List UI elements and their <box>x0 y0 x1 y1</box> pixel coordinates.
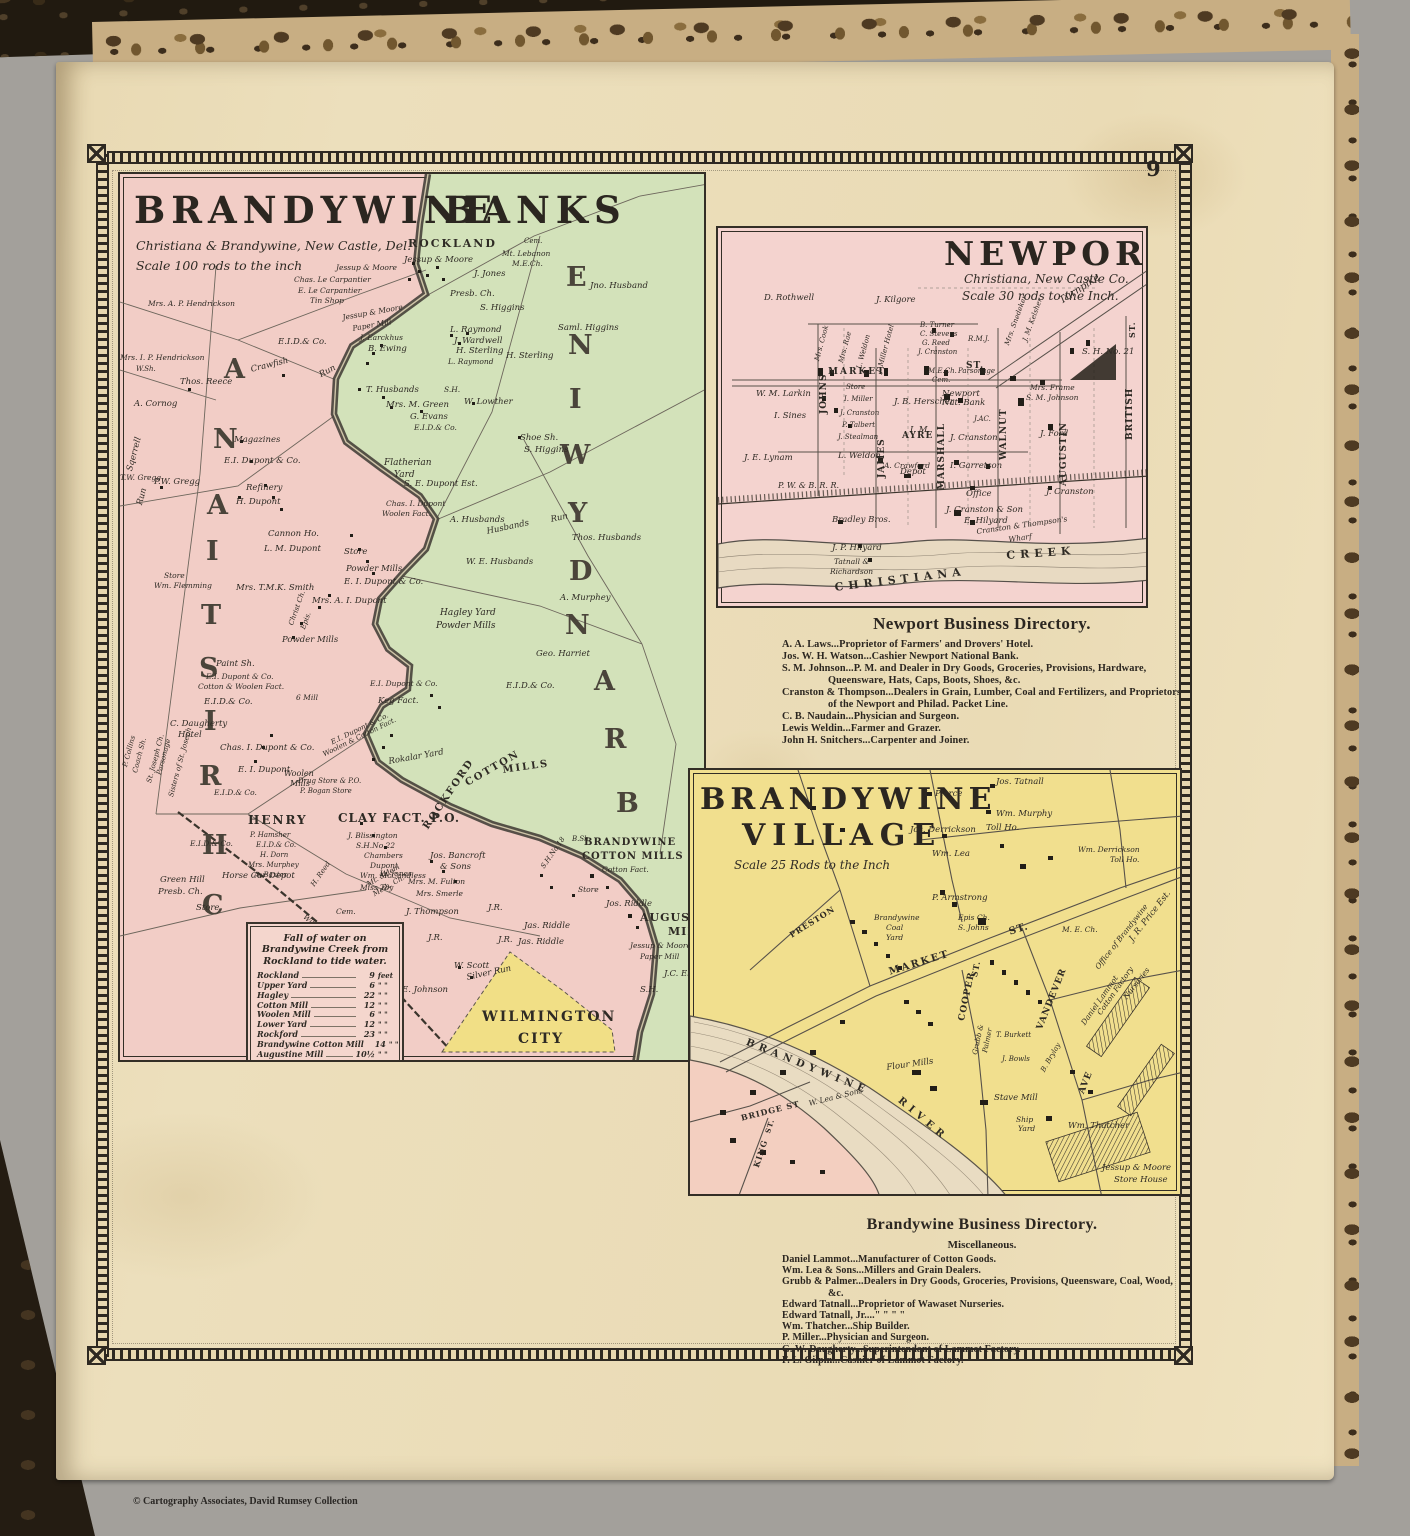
map-label: Tin Shop <box>310 297 344 305</box>
map-label: S. Higgins <box>480 304 525 313</box>
map-label: Refinery <box>246 484 282 493</box>
map-label: J. Blissington <box>348 832 398 840</box>
frame-border-left <box>96 151 109 1357</box>
map-label: S.H.No.22 <box>356 842 395 850</box>
map-label: Presb. Ch. <box>450 290 495 299</box>
map-label: Cem. <box>336 908 356 916</box>
map-label: J. Kilgore <box>876 296 916 305</box>
map-label: J. Bowls <box>1002 1056 1030 1063</box>
map-label: Flatherian <box>384 459 432 468</box>
map-label: E. I. Dupont <box>238 766 290 775</box>
map-label: Wm. Murphy <box>996 810 1052 819</box>
map-label: B.Sh. <box>572 836 591 843</box>
map-label: J. Cranston <box>918 349 957 356</box>
map-label: Jas. Riddle <box>518 938 564 947</box>
map-label: Keg Fact. <box>378 697 419 706</box>
map-label: L. Raymond <box>450 326 502 335</box>
map-label: Chas. I. Dupont <box>386 500 445 508</box>
map-label: Cannon Ho. <box>268 530 319 539</box>
map-label: S.H. <box>640 986 658 995</box>
map-label: Ayre <box>902 432 933 441</box>
banks-map-subtitle: Christiana & Brandywine, New Castle, Del… <box>136 238 411 253</box>
map-label: J. E. Lynam <box>744 454 793 463</box>
directory-entry: Lewis Weldin...Farmer and Grazer. <box>782 723 1182 735</box>
newport-map: Newport Christiana, New Castle Co. Scale… <box>716 226 1148 608</box>
map-label: Store <box>344 548 367 557</box>
map-label: J. Ford <box>1040 430 1068 439</box>
map-label: Mrs. Smerle <box>416 890 463 898</box>
map-label: Jos. Riddle <box>606 900 652 909</box>
map-label: L. Raymond <box>448 358 494 366</box>
newport-directory-title: Newport Business Directory. <box>782 614 1182 634</box>
map-label: E. Johnson <box>402 986 448 995</box>
map-label: B. Turner <box>920 322 954 329</box>
map-label: J. Earckhus <box>360 334 403 342</box>
map-label: Jessup & Moore <box>404 256 473 265</box>
map-label: S. M. Johnson <box>1026 394 1078 402</box>
map-label: C. Daugherty <box>170 720 227 729</box>
map-label: J. Cranston <box>840 410 879 417</box>
map-label: J. Cranston <box>950 434 998 443</box>
region-letter: E <box>566 264 587 292</box>
map-label: Mrs. A. P. Hendrickson <box>148 300 235 308</box>
directory-entry: F. L. Gilpin...Cashier of Lammot Factory… <box>782 1355 1182 1366</box>
map-label: T.W. Gregg <box>120 474 161 482</box>
newport-directory-entries: A. A. Laws...Proprietor of Farmers' and … <box>782 639 1182 747</box>
map-label: Chas. I. Dupont & Co. <box>220 744 314 753</box>
map-label: S. E. Dupont Est. <box>404 480 478 489</box>
map-label: T. Burkett <box>996 1032 1031 1039</box>
map-label: D. Rothwell <box>764 294 814 303</box>
map-label: Saml. Higgins <box>558 324 619 333</box>
map-label: L. M. Dupont <box>264 545 321 554</box>
frame-corner-ornament <box>87 144 106 163</box>
map-label: Paper Mill <box>640 953 679 961</box>
map-label: W. M. Larkin <box>756 390 811 399</box>
brandywine-business-directory: Brandywine Business Directory. Miscellan… <box>782 1216 1182 1366</box>
map-label: Mrs. M. Fulton <box>408 878 465 886</box>
map-label: W.Sh. <box>136 366 156 373</box>
map-label: J. Jones <box>474 270 506 279</box>
map-label: Ship <box>1016 1116 1033 1124</box>
map-label: Jos. Derrickson <box>910 826 976 835</box>
brandywine-village-map: Brandywine Village Scale 25 Rods to the … <box>688 768 1182 1196</box>
map-label: Mrs. M. Green <box>386 401 449 410</box>
directory-entry: Cranston & Thompson...Dealers in Grain, … <box>782 687 1182 711</box>
map-label: E.I.D.& Co. <box>190 840 233 848</box>
map-label: Chas. Le Carpantier <box>294 276 371 284</box>
map-label: W. Lowther <box>464 398 513 407</box>
banks-map-scale: Scale 100 rods to the inch <box>136 258 302 273</box>
map-label: Market <box>828 368 886 377</box>
map-label: & Sons <box>440 863 471 872</box>
atlas-page-scan: 9 <box>0 0 1410 1536</box>
map-label: I. Miller <box>844 396 873 403</box>
frame-corner-ornament <box>1174 144 1193 163</box>
map-label: E. Le Carpantier <box>298 287 361 295</box>
map-label: Store <box>846 384 865 391</box>
map-label: M.E.Ch. <box>512 260 543 268</box>
map-label: A. Cornog <box>134 400 177 409</box>
map-label: Store <box>164 572 185 580</box>
directory-entry: Wm. Lea & Sons...Millers and Grain Deale… <box>782 1265 1182 1276</box>
map-label: H. Sterling <box>506 352 554 361</box>
map-label: Newport Nat. Bank <box>942 390 1000 408</box>
map-label: E.I.D.& Co. <box>204 698 253 707</box>
region-letter: N <box>568 332 593 360</box>
map-label: Powder Mills <box>346 565 402 574</box>
map-label: Johns <box>820 374 829 414</box>
banks-map-title-right: Banks <box>444 188 627 232</box>
directory-entry: Wm. Thatcher...Ship Builder. <box>782 1321 1182 1332</box>
map-label: E.I.D.& Co. <box>214 789 257 797</box>
map-label: J. Wardwell <box>454 337 502 346</box>
water-fall-table: Fall of water on Brandywine Creek from R… <box>246 922 404 1062</box>
map-label: Cotton & Woolen Fact. <box>198 683 284 691</box>
page-number: 9 <box>1146 156 1161 181</box>
map-label: J.R. <box>428 934 443 943</box>
map-label: Store <box>578 886 599 894</box>
directory-entry: A. A. Laws...Proprietor of Farmers' and … <box>782 639 1182 651</box>
map-label: Cem. <box>932 377 950 384</box>
map-label: Thos. Husbands <box>572 534 641 543</box>
map-label: E.I.D.& Co. <box>506 682 555 691</box>
brandywine-directory-entries: Daniel Lammot...Manufacturer of Cotton G… <box>782 1254 1182 1366</box>
map-label: E.I. Dupont & Co. <box>224 457 301 466</box>
map-label: E.I. Dupont & Co. <box>370 680 438 688</box>
map-label: C. Stevens <box>920 331 958 338</box>
directory-entry: John H. Snitchers...Carpenter and Joiner… <box>782 735 1182 747</box>
map-label: Wm. Flemming <box>154 582 212 590</box>
map-label: R.M.J. <box>968 336 989 343</box>
map-label: Depot <box>900 468 926 477</box>
map-label: Jno. Husband <box>590 282 648 291</box>
map-label: J.R. <box>488 904 503 913</box>
map-label: Jessup & Moore <box>1102 1164 1171 1173</box>
map-label: Chambers <box>364 852 403 860</box>
brandywine-directory-subtitle: Miscellaneous. <box>782 1239 1182 1251</box>
directory-entry: Grubb & Palmer...Dealers in Dry Goods, G… <box>782 1276 1182 1298</box>
map-label: Yard <box>1018 1125 1035 1133</box>
region-letter: D <box>569 558 592 586</box>
map-label: H. Sterling <box>456 347 504 356</box>
map-label: Store House <box>1114 1176 1168 1185</box>
map-label: Epis Ch. <box>958 914 990 922</box>
directory-entry: C. B. Naudain...Physician and Surgeon. <box>782 711 1182 723</box>
region-letter: T <box>201 602 221 630</box>
map-label: Coal <box>886 924 903 932</box>
map-label: Drug Store & P.O. <box>298 778 361 785</box>
map-label: Store <box>196 904 219 913</box>
region-letter: A <box>594 668 615 696</box>
map-label: Wm. Thatcher <box>1068 1122 1129 1131</box>
directory-entry: S. M. Johnson...P. M. and Dealer in Dry … <box>782 663 1182 687</box>
map-label: Horse Car Depot <box>222 872 295 881</box>
directory-entry: G. W. Daugherty...Superintendant of Lamm… <box>782 1344 1182 1355</box>
map-label: Jas. Riddle <box>524 922 570 931</box>
map-label: St. <box>966 362 984 371</box>
map-label: Walnut <box>1000 408 1009 460</box>
map-label: Mrs. I. P. Hendrickson <box>120 354 204 362</box>
map-label: A. Murphey <box>560 594 611 603</box>
map-label: T. Husbands <box>366 386 419 395</box>
marbled-page-edges-right <box>1331 34 1359 1466</box>
region-letter: I <box>569 386 582 414</box>
village-map-scale: Scale 25 Rods to the Inch <box>734 858 890 872</box>
map-label: Henry <box>248 814 308 827</box>
map-label: L. Pierce <box>924 790 962 799</box>
map-label: Wilmington <box>482 1010 616 1025</box>
map-label: J. P. Hilyard <box>832 544 882 553</box>
frame-border-top <box>96 151 1188 164</box>
map-label: Brandywine <box>874 914 920 922</box>
directory-entry: Daniel Lammot...Manufacturer of Cotton G… <box>782 1254 1182 1265</box>
map-label: P. Armstrong <box>932 894 988 903</box>
map-label: Cotton Mills <box>582 852 684 863</box>
water-table-rows: Rockland 9feet Upper Yard 6" " Hagley 22… <box>257 971 393 1062</box>
newport-map-subtitle: Christiana, New Castle Co. <box>964 272 1129 286</box>
map-label: M.E.Ch. <box>928 368 957 375</box>
map-label: Bradley Bros. <box>832 516 891 525</box>
map-label: S. Higgins <box>524 446 569 455</box>
map-label: H. Dorn <box>260 852 288 859</box>
map-label: Cem. <box>524 238 542 245</box>
map-label: Jos. Bancroft <box>430 852 486 861</box>
map-label: Yard <box>886 934 903 942</box>
newport-map-title: Newport <box>944 234 1148 273</box>
map-label: P. Talbert <box>842 422 875 429</box>
region-letter: R <box>604 726 626 754</box>
map-label: Cotton Fact. <box>602 866 649 874</box>
map-label: S. H. No. 21 <box>1082 348 1134 357</box>
map-label: Mrs. A. I. Dupont <box>312 597 387 606</box>
map-label: Paint Sh. <box>216 660 255 669</box>
map-label: B. Ewing <box>368 345 407 354</box>
water-table-row: Millers 17" " <box>257 1060 393 1062</box>
map-label: City <box>518 1032 564 1047</box>
map-label: E.I.D.& Co. <box>414 424 457 432</box>
map-label: Presb. Ch. <box>158 888 203 897</box>
map-label: St. <box>1128 322 1136 338</box>
map-label: G. Reed <box>922 340 950 347</box>
map-label: Powder Mills <box>436 622 496 631</box>
map-label: G. Evans <box>410 413 448 422</box>
map-label: E.I.D.& Co. <box>278 338 327 347</box>
map-label: J.AC. <box>974 416 991 423</box>
map-label: Wm. Derrickson <box>1078 846 1140 854</box>
map-label: S. Johns <box>958 924 989 932</box>
map-label: Green Hill <box>160 876 205 885</box>
map-label: Office <box>966 490 992 499</box>
directory-entry: Edward Tatnall...Proprietor of Wawaset N… <box>782 1299 1182 1310</box>
map-label: Marshall <box>938 423 947 490</box>
map-label: Toll Ho. <box>986 824 1019 833</box>
frame-corner-ornament <box>87 1346 106 1365</box>
directory-entry: P. Miller...Physician and Surgeon. <box>782 1332 1182 1343</box>
brandywine-directory-title: Brandywine Business Directory. <box>782 1216 1182 1234</box>
map-label: British <box>1126 388 1135 440</box>
map-label: Mrs. Murphey <box>248 862 299 869</box>
region-letter: B <box>616 790 639 818</box>
map-label: Toll Ho. <box>1110 856 1139 864</box>
village-map-title-line2: Village <box>742 818 942 853</box>
map-label: W. E. Husbands <box>466 558 533 567</box>
village-map-title-line1: Brandywine <box>700 782 996 817</box>
map-label: Richardson <box>830 568 873 576</box>
map-label: I. Sines <box>774 412 806 421</box>
map-label: L. Weldon <box>838 452 881 461</box>
map-label: J. Thompson <box>406 908 459 917</box>
map-label: Jos. Tatnall <box>996 778 1044 787</box>
map-label: E.I.D.& Co. <box>256 842 296 849</box>
map-label: Thos. Reece <box>180 378 232 387</box>
brandywine-banks-map: Brandywine Banks Christiana & Brandywine… <box>118 172 706 1062</box>
map-label: Brandywine <box>584 838 676 849</box>
map-label: E. I. Dupont & Co. <box>344 578 423 587</box>
map-label: Jessup & Moore <box>630 942 691 950</box>
map-label: Mt. Lebanon <box>502 250 550 258</box>
map-label: 6 Mill <box>296 694 318 702</box>
map-label: Geo. Harriet <box>536 650 590 659</box>
map-label: J.R. <box>498 936 513 945</box>
map-label: Magazines <box>234 436 280 445</box>
map-label: E.I. Dupont & Co. <box>206 673 274 681</box>
newport-business-directory: Newport Business Directory. A. A. Laws..… <box>782 614 1182 747</box>
map-label: Powder Mills <box>282 636 338 645</box>
map-label: Stave Mill <box>994 1094 1038 1103</box>
map-label: Mrs. Frame <box>1030 384 1075 392</box>
map-label: J. Cranston <box>1046 488 1094 497</box>
region-letter: A <box>207 492 228 520</box>
map-label: J. Cranston & Son <box>946 506 1023 515</box>
map-label: Hagley Yard <box>440 609 496 618</box>
region-letter: Y <box>568 500 587 528</box>
map-label: Tatnall & <box>834 558 869 566</box>
map-label: H. Dupont <box>236 498 281 507</box>
map-label: P. Bogan Store <box>300 788 352 795</box>
map-label: P. W. & B. R. R. <box>778 482 839 490</box>
map-label: Woolen Fact. <box>382 510 431 518</box>
directory-entry: Edward Tatnall, Jr...." " " " <box>782 1310 1182 1321</box>
region-letter: N <box>565 612 590 640</box>
map-label: J. Stealman <box>838 434 878 441</box>
map-label: I. Garretson <box>950 462 1002 471</box>
region-letter: I <box>206 538 219 566</box>
map-label: Jessup & Moore <box>336 264 397 272</box>
directory-entry: Jos. W. H. Watson...Cashier Newport Nati… <box>782 651 1182 663</box>
collection-credit: © Cartography Associates, David Rumsey C… <box>133 1496 358 1507</box>
map-label: Wm. Lea <box>932 850 970 859</box>
map-label: Rockland <box>408 238 497 250</box>
map-label: Shoe Sh. <box>520 434 558 443</box>
map-label: S.H. <box>444 386 460 394</box>
map-label: M. E. Ch. <box>1062 926 1098 934</box>
map-label: P. Hamsher <box>250 832 290 839</box>
water-table-title: Fall of water on Brandywine Creek from R… <box>257 933 393 967</box>
